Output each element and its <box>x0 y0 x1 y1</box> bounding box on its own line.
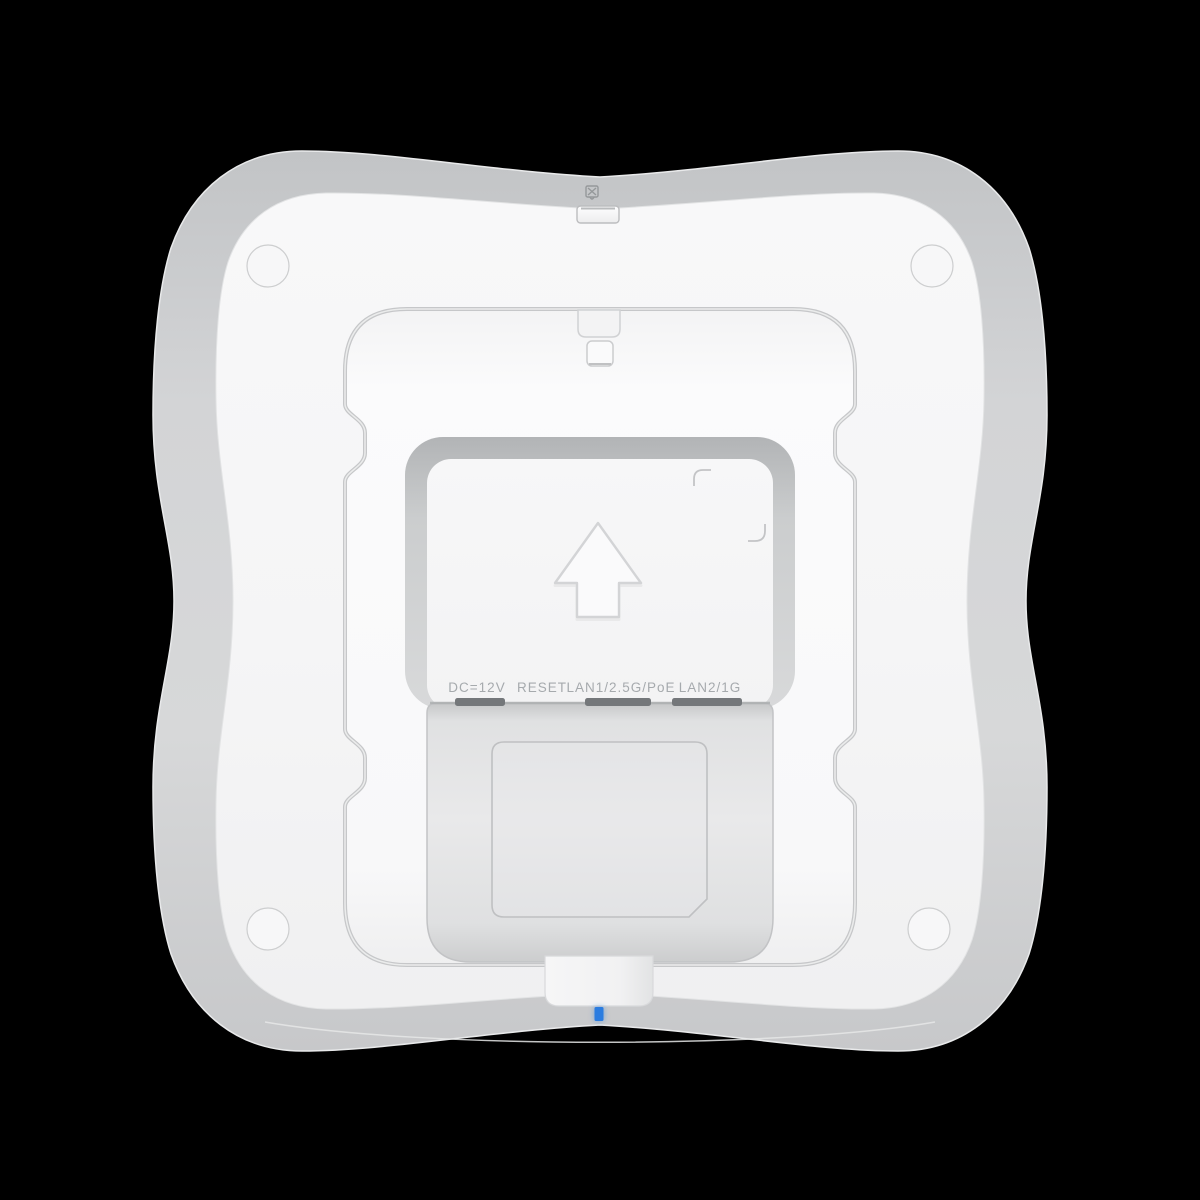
port-label-lan2: LAN2/1G <box>679 680 742 695</box>
screw-cap-bottom-right <box>908 908 950 950</box>
port-slot-dc <box>455 698 505 706</box>
mount-latch-slot <box>577 206 619 223</box>
status-led <box>595 1007 604 1021</box>
screw-cap-bottom-left <box>247 908 289 950</box>
screw-cap-top-left <box>247 245 289 287</box>
recess-hanging-tab <box>578 310 620 337</box>
port-slot-lan2 <box>672 698 742 706</box>
port-label-dc: DC=12V <box>448 680 505 695</box>
screw-cap-top-right <box>911 245 953 287</box>
cable-door-outline <box>492 742 707 917</box>
recess-clip-button <box>587 341 613 366</box>
access-point-rear-view: DC=12V RESET LAN1/2.5G/PoE LAN2/1G <box>0 0 1200 1200</box>
cable-exit-tab <box>545 956 653 1006</box>
port-label-row: DC=12V RESET LAN1/2.5G/PoE LAN2/1G <box>448 680 741 695</box>
product-photo-stage: DC=12V RESET LAN1/2.5G/PoE LAN2/1G <box>0 0 1200 1200</box>
port-label-lan1: LAN1/2.5G/PoE <box>566 680 675 695</box>
port-slot-lan1 <box>585 698 651 706</box>
port-label-reset: RESET <box>517 680 567 695</box>
